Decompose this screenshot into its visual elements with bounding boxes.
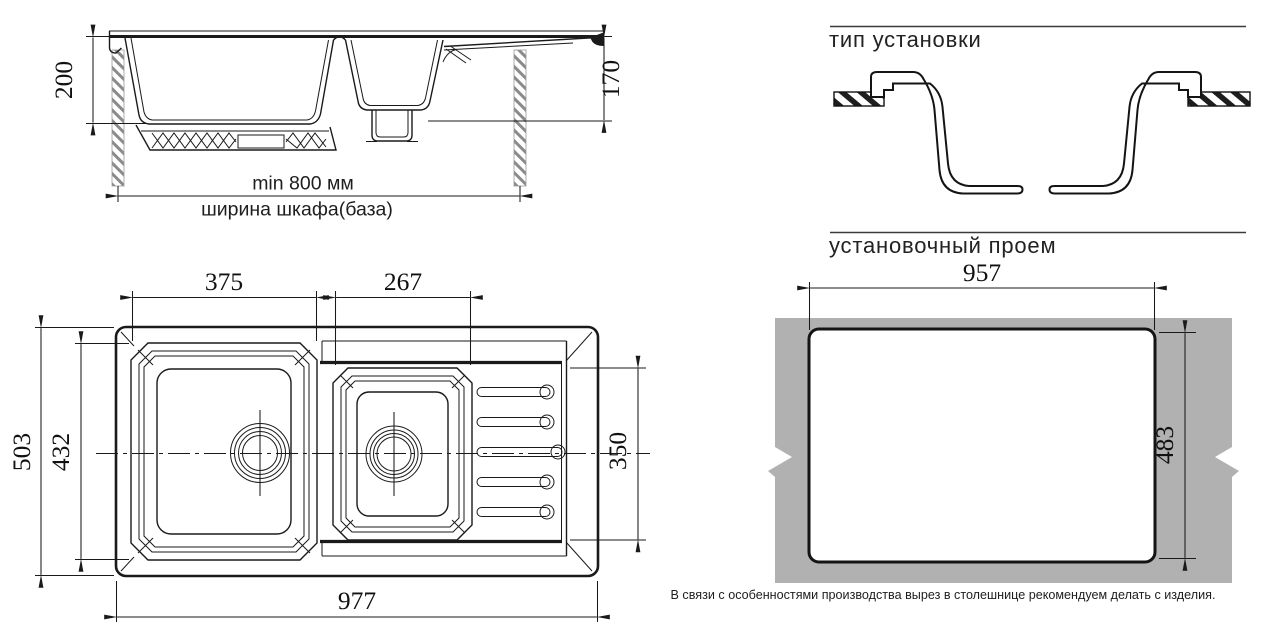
plan-view: 375 267 503 432 350 [7, 267, 650, 622]
drainboard-depth-value: 350 [603, 432, 632, 470]
drainboard-ribs [477, 385, 565, 519]
min-cabinet-width-label: min 800 мм [252, 173, 354, 195]
cutout-opening [809, 329, 1155, 562]
dim-cabinet-width: min 800 мм ширина шкафа(база) [118, 173, 520, 221]
main-bowl-depth-value: 432 [46, 433, 75, 471]
main-bowl-plan [131, 343, 317, 560]
cutout-title: установочный проем [829, 233, 1056, 258]
cabinet-wall-hatch-left [112, 50, 124, 186]
depth-small-value: 170 [596, 60, 625, 98]
dim-small-bowl-width: 267 [336, 267, 471, 365]
overall-width-value: 977 [338, 586, 377, 615]
sink-technical-drawing: 200 170 min 800 мм ширина шкафа(база) [0, 0, 1280, 638]
sink-rim-profile [871, 72, 1201, 194]
small-bowl-width-value: 267 [384, 267, 423, 296]
dim-main-bowl-width: 375 [133, 267, 317, 341]
installation-type-view: тип установки [829, 27, 1250, 194]
cutout-view: установочный проем 957 483 В связи с осо… [671, 233, 1246, 603]
drawing-svg: 200 170 min 800 мм ширина шкафа(база) [0, 0, 1280, 638]
production-note: В связи с особенностями производства выр… [671, 588, 1216, 602]
sink-section-outline [109, 31, 604, 150]
cabinet-width-label: ширина шкафа(база) [201, 199, 393, 221]
installation-type-title: тип установки [829, 27, 982, 52]
depth-main-value: 200 [49, 61, 78, 99]
dim-overall-width: 977 [117, 581, 598, 622]
main-bowl-width-value: 375 [205, 267, 243, 296]
cutout-width-value: 957 [963, 258, 1002, 287]
side-section-view: 200 170 min 800 мм ширина шкафа(база) [49, 31, 625, 221]
cabinet-wall-hatch-right [514, 50, 526, 186]
cutout-depth-value: 483 [1150, 426, 1179, 464]
overall-depth-value: 503 [7, 433, 36, 471]
